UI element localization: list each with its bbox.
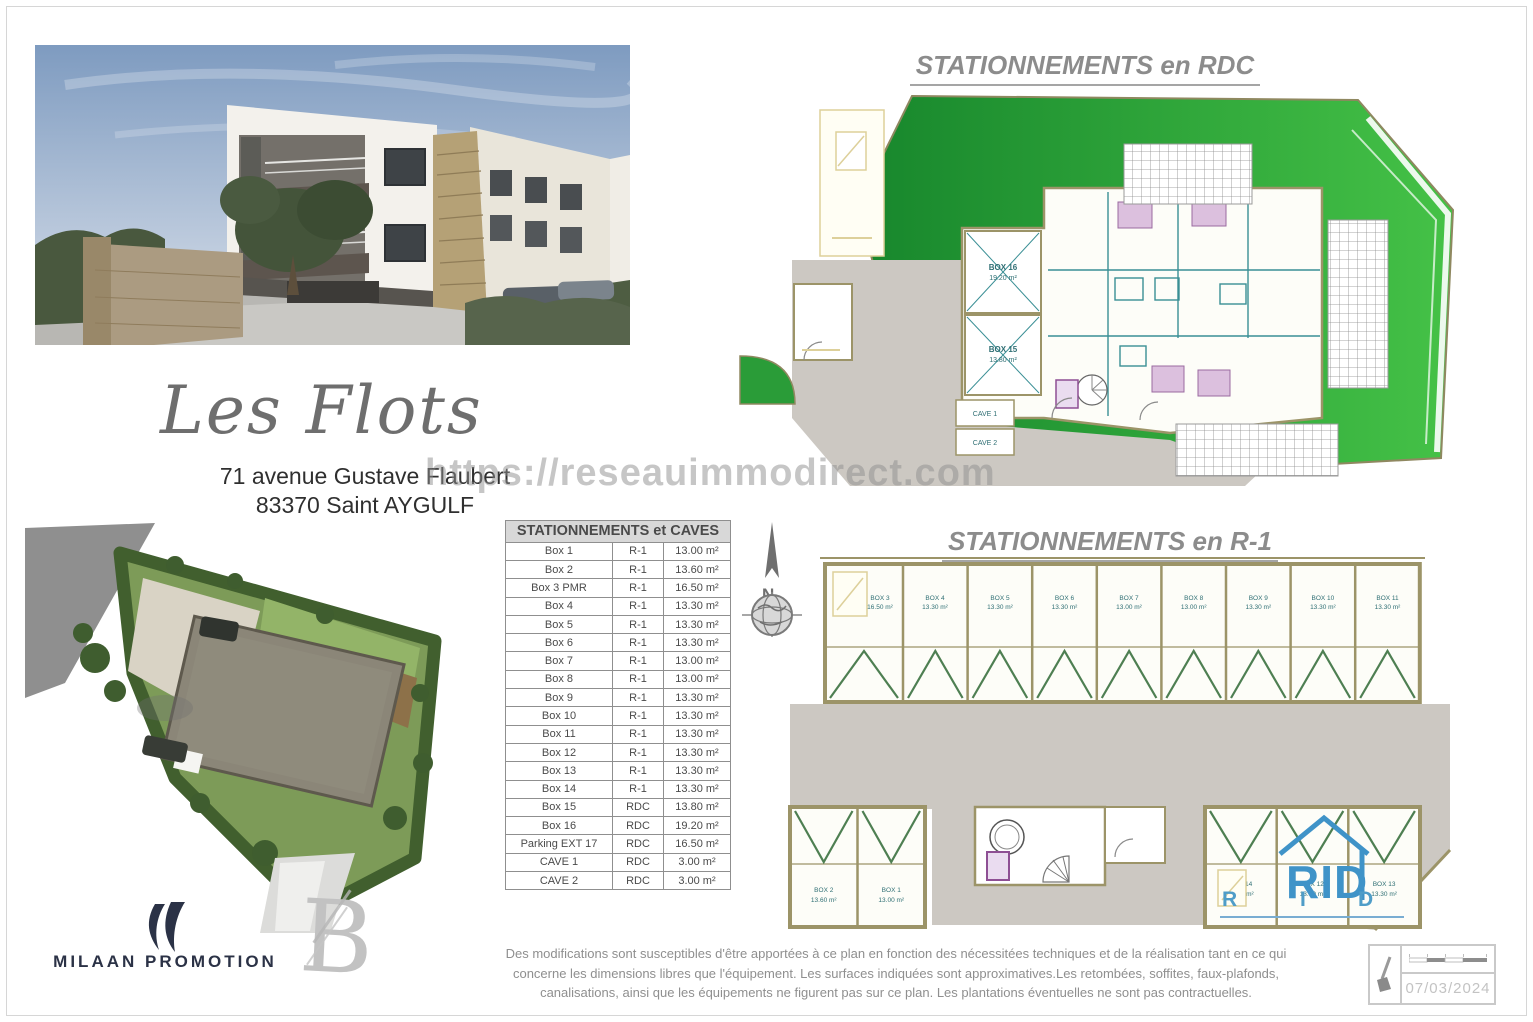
r1-top-boxes [825, 564, 1420, 702]
r1-box-area: 13.30 m² [1375, 604, 1401, 611]
r1-box-area: 13.30 m² [987, 604, 1013, 611]
table-row: Box 2R-113.60 m² [506, 560, 731, 578]
box-label: Box 9 [506, 689, 613, 707]
document-page: Les Flots 71 avenue Gustave Flaubert 833… [0, 0, 1533, 1022]
r1-box-area: 16.50 m² [867, 604, 893, 611]
area-cell: 16.50 m² [664, 835, 731, 853]
r1-box-area: 13.00 m² [878, 897, 904, 904]
rdc-box15-label: BOX 15 [989, 345, 1018, 354]
r1-box-area: 13.00 m² [1116, 604, 1142, 611]
level-cell: RDC [613, 817, 664, 835]
table-row: Box 9R-113.30 m² [506, 689, 731, 707]
area-cell: 13.00 m² [664, 542, 731, 560]
area-cell: 13.30 m² [664, 689, 731, 707]
r1-box-label: BOX 9 [1249, 595, 1269, 602]
level-cell: R-1 [613, 725, 664, 743]
r1-box-label: BOX 7 [1119, 595, 1139, 602]
table-row: CAVE 1RDC3.00 m² [506, 853, 731, 871]
r1-box-area: 13.30 m² [922, 604, 948, 611]
milaan-promotion-icon [135, 898, 197, 954]
r1-box-area: 13.30 m² [1245, 604, 1271, 611]
rid-letter-i: I [1300, 888, 1306, 912]
rdc-cave1-label: CAVE 1 [973, 411, 997, 418]
level-cell: R-1 [613, 542, 664, 560]
r1-box-area: 13.30 m² [1052, 604, 1078, 611]
area-cell: 13.30 m² [664, 597, 731, 615]
parking-table-body: Box 1R-113.00 m²Box 2R-113.60 m²Box 3 PM… [506, 542, 731, 890]
disclaimer-line-3: canalisations, ainsi que les équipements… [440, 983, 1352, 1003]
table-row: CAVE 2RDC3.00 m² [506, 872, 731, 890]
rdc-plan-title: STATIONNEMENTS en RDC [870, 50, 1300, 86]
rdc-box15-area: 13.80 m² [989, 357, 1017, 364]
rid-letter-d: D [1358, 888, 1373, 912]
area-cell: 3.00 m² [664, 872, 731, 890]
parking-table-title: STATIONNEMENTS et CAVES [506, 521, 731, 543]
table-row: Box 1R-113.00 m² [506, 542, 731, 560]
box-label: Box 8 [506, 670, 613, 688]
r1-box-label: BOX 10 [1312, 595, 1335, 602]
table-row: Box 3 PMRR-116.50 m² [506, 579, 731, 597]
rdc-terrace-bottom [1176, 424, 1338, 476]
rdc-box16-area: 19.20 m² [989, 275, 1017, 282]
disclaimer-line-1: Des modifications sont susceptibles d'êt… [440, 944, 1352, 964]
r1-box-label: BOX 8 [1184, 595, 1204, 602]
box-label: Box 11 [506, 725, 613, 743]
table-row: Box 6R-113.30 m² [506, 634, 731, 652]
aerial-render [25, 523, 460, 933]
area-cell: 13.30 m² [664, 725, 731, 743]
plan-date: 07/03/2024 [1402, 974, 1494, 1003]
level-cell: RDC [613, 872, 664, 890]
area-cell: 13.60 m² [664, 560, 731, 578]
area-cell: 13.80 m² [664, 798, 731, 816]
area-cell: 16.50 m² [664, 579, 731, 597]
table-row: Box 11R-113.30 m² [506, 725, 731, 743]
level-cell: RDC [613, 835, 664, 853]
level-cell: R-1 [613, 579, 664, 597]
north-arrow-icon [1370, 946, 1402, 1003]
rdc-box16-label: BOX 16 [989, 263, 1018, 272]
r1-box-label: BOX 1 [882, 887, 902, 894]
box-label: Box 4 [506, 597, 613, 615]
box-label: Box 2 [506, 560, 613, 578]
box-label: Box 6 [506, 634, 613, 652]
area-cell: 13.00 m² [664, 670, 731, 688]
scale-bar [1402, 946, 1494, 974]
area-cell: 13.00 m² [664, 652, 731, 670]
table-row: Box 5R-113.30 m² [506, 615, 731, 633]
box-label: Box 15 [506, 798, 613, 816]
r1-box-area: 13.60 m² [811, 897, 837, 904]
area-cell: 19.20 m² [664, 817, 731, 835]
milaan-promotion-logo: MILAAN PROMOTION [40, 952, 290, 972]
box-label: Box 5 [506, 615, 613, 633]
address-line-2: 83370 Saint AYGULF [150, 491, 580, 520]
r1-box-label: BOX 5 [990, 595, 1010, 602]
rid-monogram: RID [1286, 856, 1368, 908]
box-label: Box 16 [506, 817, 613, 835]
table-row: Box 12R-113.30 m² [506, 743, 731, 761]
table-row: Box 15RDC13.80 m² [506, 798, 731, 816]
level-cell: R-1 [613, 743, 664, 761]
table-row: Box 8R-113.00 m² [506, 670, 731, 688]
disclaimer: Des modifications sont susceptibles d'êt… [440, 944, 1352, 1003]
box-label: Box 10 [506, 707, 613, 725]
area-cell: 13.30 m² [664, 634, 731, 652]
level-cell: R-1 [613, 615, 664, 633]
level-cell: R-1 [613, 707, 664, 725]
watermark: https://reseauimmodirect.com [425, 452, 996, 495]
parking-table: STATIONNEMENTS et CAVES Box 1R-113.00 m²… [505, 520, 731, 890]
rdc-terrace-right [1328, 220, 1388, 388]
r1-box-area: 13.30 m² [1310, 604, 1336, 611]
architect-logo: B [297, 886, 376, 990]
table-row: Box 16RDC19.20 m² [506, 817, 731, 835]
table-row: Box 14R-113.30 m² [506, 780, 731, 798]
box-label: CAVE 1 [506, 853, 613, 871]
r1-box-label: BOX 3 [870, 595, 890, 602]
level-cell: RDC [613, 853, 664, 871]
title-block: 07/03/2024 [1368, 944, 1496, 1005]
r1-box-label: BOX 11 [1376, 595, 1399, 602]
rdc-floor-plan: BOX 16 19.20 m² BOX 15 13.80 m² CAVE 1 C… [700, 88, 1500, 493]
area-cell: 3.00 m² [664, 853, 731, 871]
level-cell: R-1 [613, 634, 664, 652]
area-cell: 13.30 m² [664, 707, 731, 725]
rdc-terrace-top [1124, 144, 1252, 204]
project-title: Les Flots [160, 372, 483, 449]
level-cell: R-1 [613, 670, 664, 688]
table-row: Box 10R-113.30 m² [506, 707, 731, 725]
table-row: Parking EXT 17RDC16.50 m² [506, 835, 731, 853]
r1-box-label: BOX 2 [814, 887, 834, 894]
box-label: Box 7 [506, 652, 613, 670]
level-cell: R-1 [613, 762, 664, 780]
box-label: Box 12 [506, 743, 613, 761]
box-label: Parking EXT 17 [506, 835, 613, 853]
rid-underline [1220, 916, 1404, 918]
level-cell: R-1 [613, 780, 664, 798]
r1-box-label: BOX 6 [1055, 595, 1075, 602]
r1-box-label: BOX 4 [925, 595, 945, 602]
area-cell: 13.30 m² [664, 762, 731, 780]
level-cell: R-1 [613, 560, 664, 578]
level-cell: R-1 [613, 597, 664, 615]
level-cell: R-1 [613, 652, 664, 670]
rid-logo-icon: RID [1262, 808, 1402, 908]
r1-box-area: 13.00 m² [1181, 604, 1207, 611]
level-cell: RDC [613, 798, 664, 816]
level-cell: R-1 [613, 689, 664, 707]
area-cell: 13.30 m² [664, 780, 731, 798]
table-row: Box 7R-113.00 m² [506, 652, 731, 670]
rid-letter-r: R [1222, 888, 1237, 912]
area-cell: 13.30 m² [664, 743, 731, 761]
table-row: Box 4R-113.30 m² [506, 597, 731, 615]
disclaimer-line-2: concerne les dimensions libres que l'équ… [440, 964, 1352, 984]
table-row: Box 13R-113.30 m² [506, 762, 731, 780]
building-render [35, 45, 630, 345]
rdc-cave2-label: CAVE 2 [973, 440, 997, 447]
box-label: Box 14 [506, 780, 613, 798]
area-cell: 13.30 m² [664, 615, 731, 633]
box-label: Box 1 [506, 542, 613, 560]
box-label: CAVE 2 [506, 872, 613, 890]
box-label: Box 13 [506, 762, 613, 780]
box-label: Box 3 PMR [506, 579, 613, 597]
